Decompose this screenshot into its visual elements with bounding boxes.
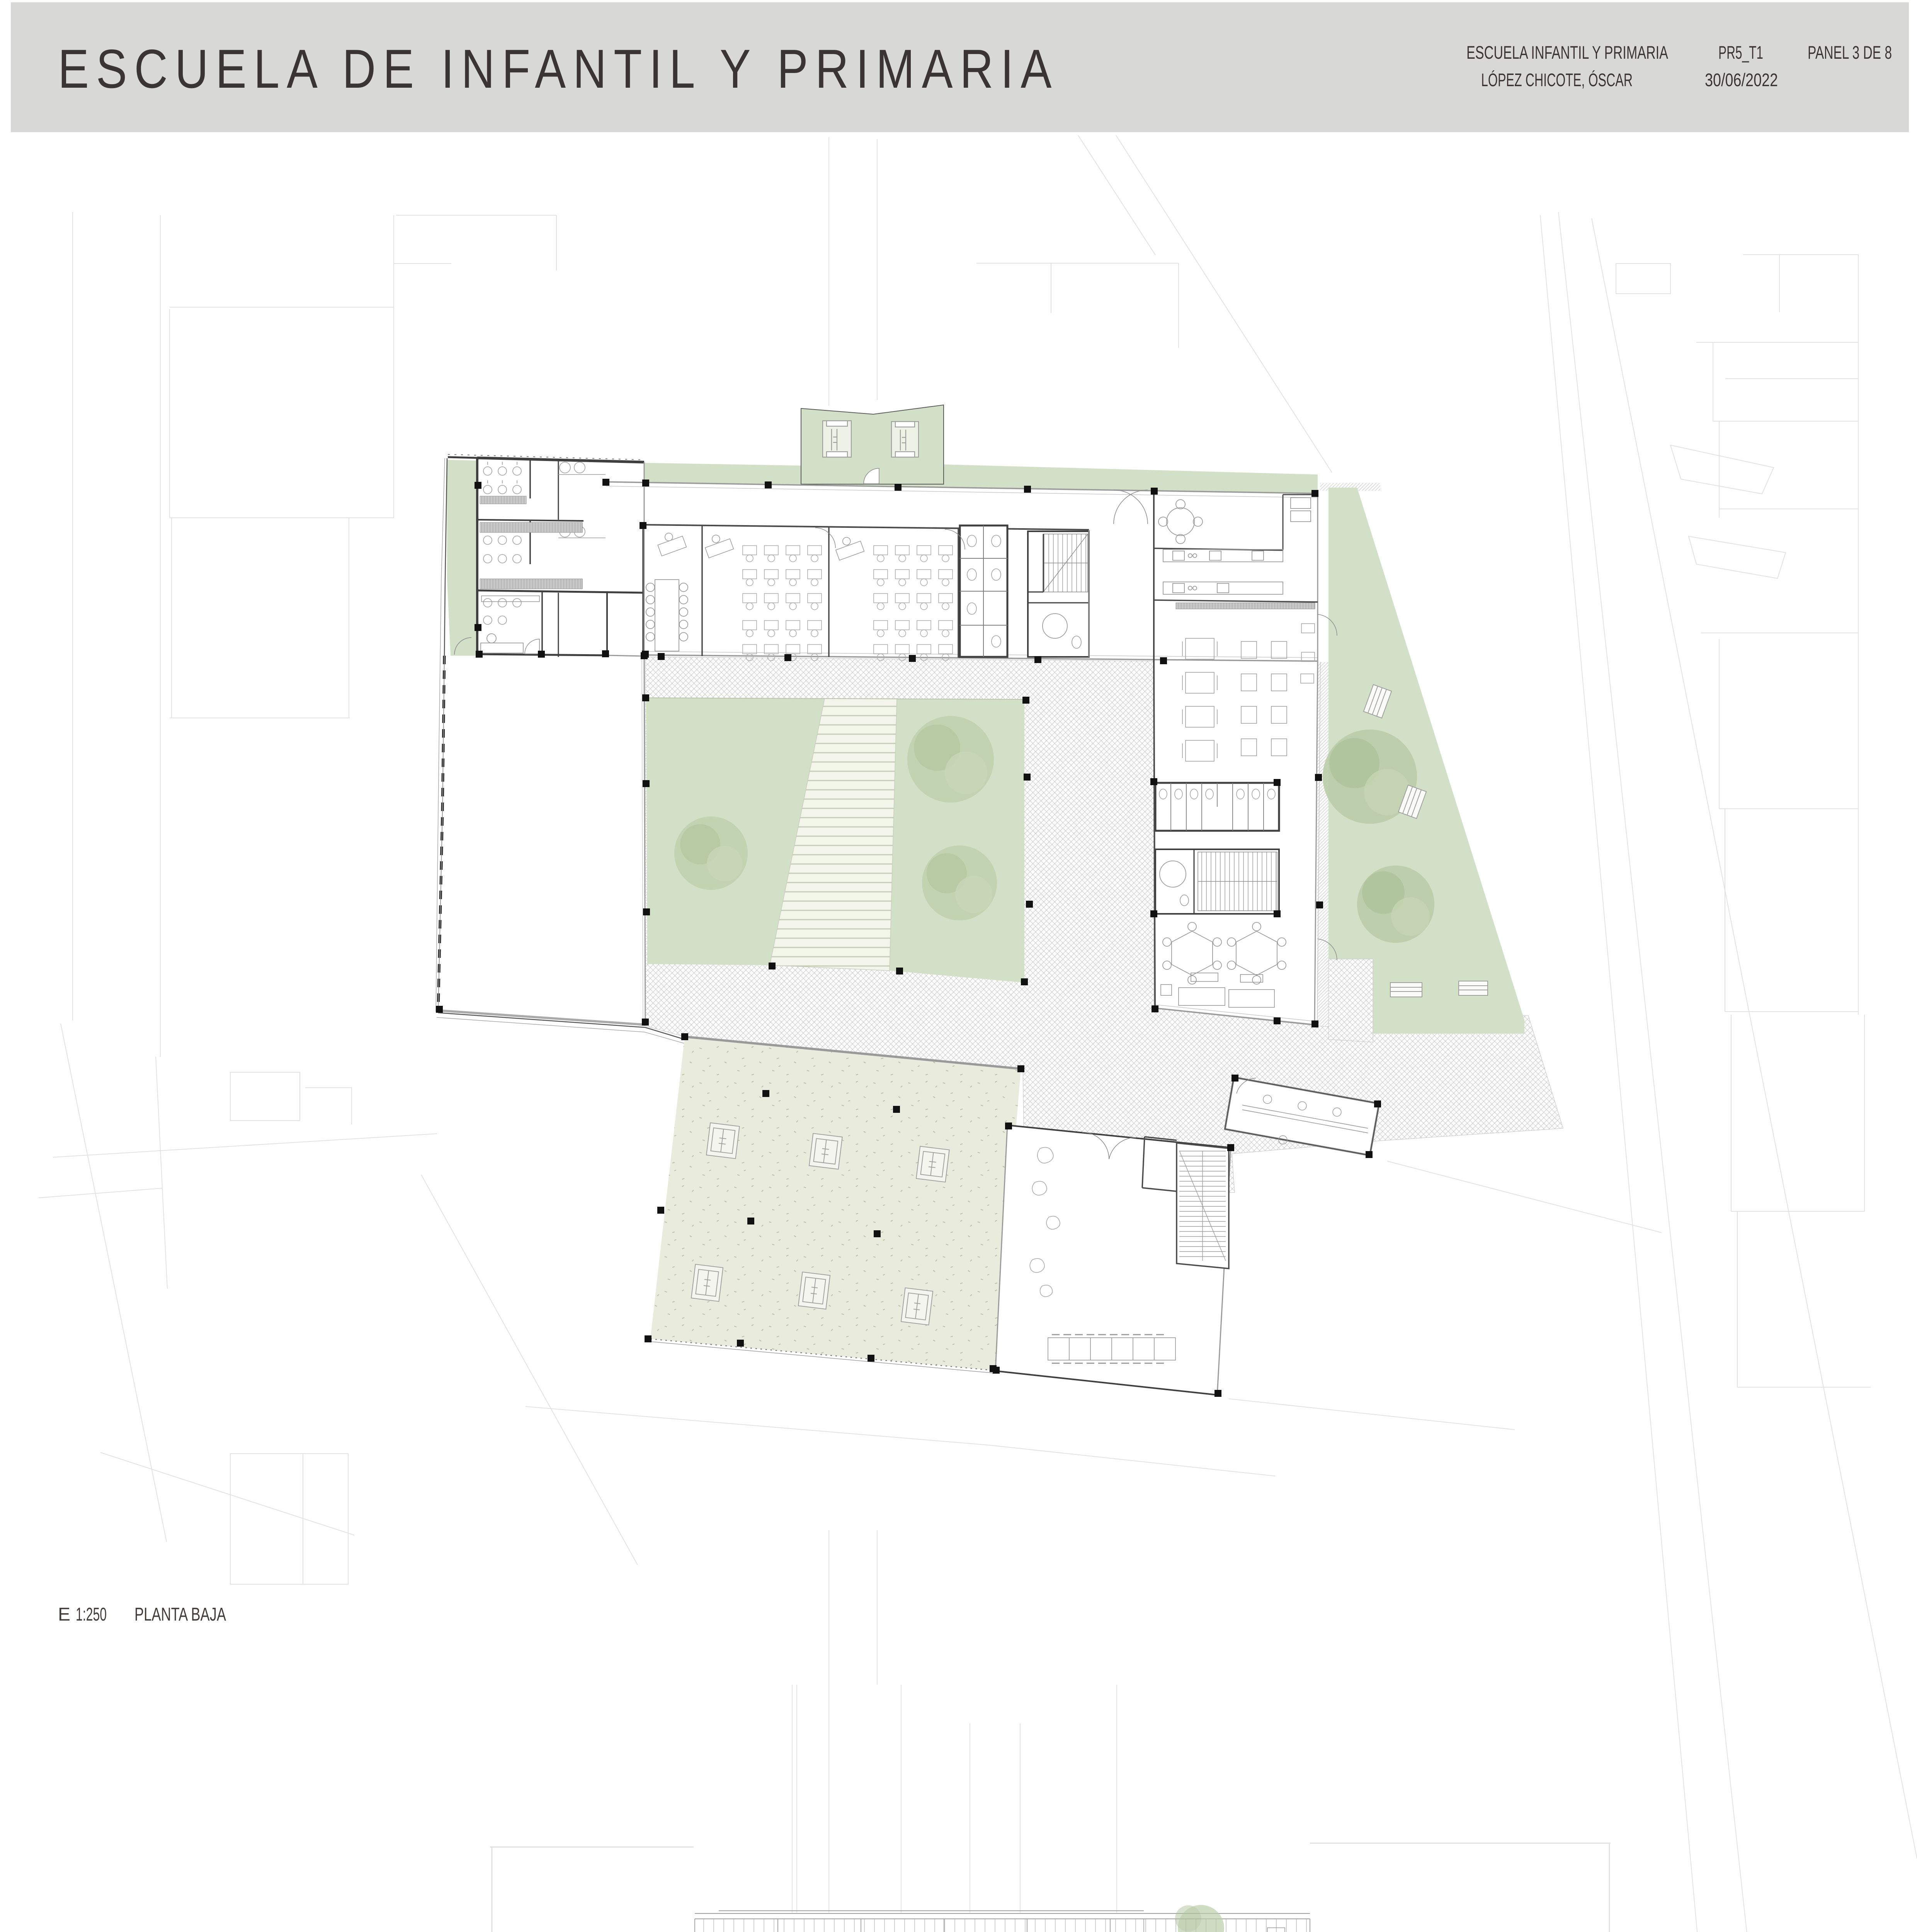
svg-text:LÓPEZ CHICOTE, ÓSCAR: LÓPEZ CHICOTE, ÓSCAR (1481, 70, 1633, 90)
svg-text:PLANTA BAJA: PLANTA BAJA (134, 1604, 226, 1625)
svg-text:1:250: 1:250 (76, 1604, 107, 1625)
svg-text:E: E (58, 1604, 70, 1625)
svg-text:ESCUELA INFANTIL Y PRIMARIA: ESCUELA INFANTIL Y PRIMARIA (1466, 42, 1668, 63)
svg-text:PANEL 3 DE 8: PANEL 3 DE 8 (1808, 42, 1892, 63)
svg-text:30/06/2022: 30/06/2022 (1705, 70, 1778, 90)
svg-text:PR5_T1: PR5_T1 (1718, 42, 1763, 63)
svg-text:ESCUELA DE INFANTIL Y PRIM: ESCUELA DE INFANTIL Y PRIMARIA (58, 38, 1059, 100)
